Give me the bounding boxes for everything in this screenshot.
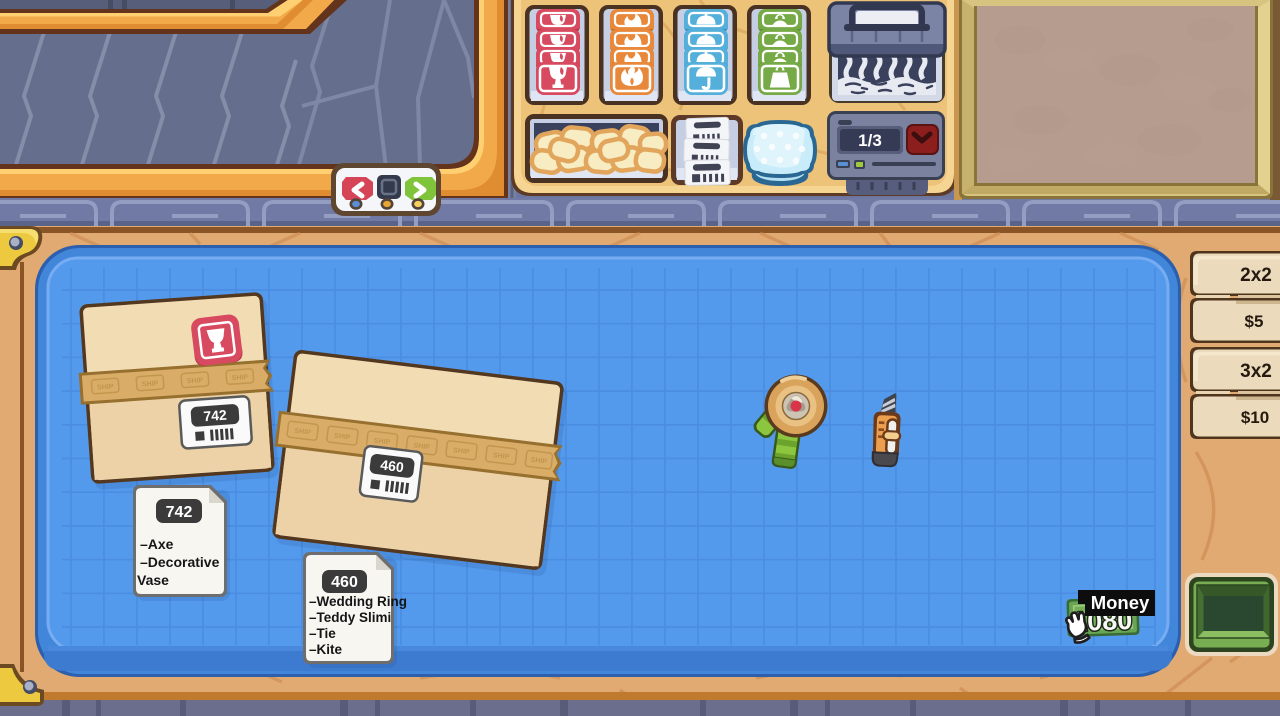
svg-text:Vase: Vase bbox=[137, 572, 169, 588]
svg-text:Money: Money bbox=[1091, 592, 1150, 613]
svg-text:–Tie: –Tie bbox=[309, 626, 336, 641]
svg-text:$10: $10 bbox=[1241, 408, 1269, 427]
svg-text:1/3: 1/3 bbox=[858, 131, 882, 150]
svg-text:2x2: 2x2 bbox=[1240, 265, 1272, 286]
svg-text:SHIP: SHIP bbox=[97, 383, 114, 391]
svg-text:–Wedding Ring: –Wedding Ring bbox=[309, 594, 407, 609]
svg-text:–Teddy Slimi: –Teddy Slimi bbox=[309, 610, 391, 625]
svg-text:–Decorative: –Decorative bbox=[140, 554, 220, 570]
svg-text:742: 742 bbox=[166, 504, 193, 521]
svg-text:460: 460 bbox=[331, 574, 358, 591]
svg-text:742: 742 bbox=[203, 407, 228, 425]
svg-text:SHIP: SHIP bbox=[232, 374, 249, 382]
svg-text:SHIP: SHIP bbox=[187, 377, 204, 385]
svg-text:–Axe: –Axe bbox=[140, 536, 174, 552]
svg-text:3x2: 3x2 bbox=[1240, 361, 1272, 382]
svg-text:–Kite: –Kite bbox=[309, 642, 343, 657]
svg-text:$5: $5 bbox=[1245, 312, 1264, 331]
svg-text:SHIP: SHIP bbox=[142, 380, 159, 388]
svg-text:460: 460 bbox=[380, 457, 405, 476]
